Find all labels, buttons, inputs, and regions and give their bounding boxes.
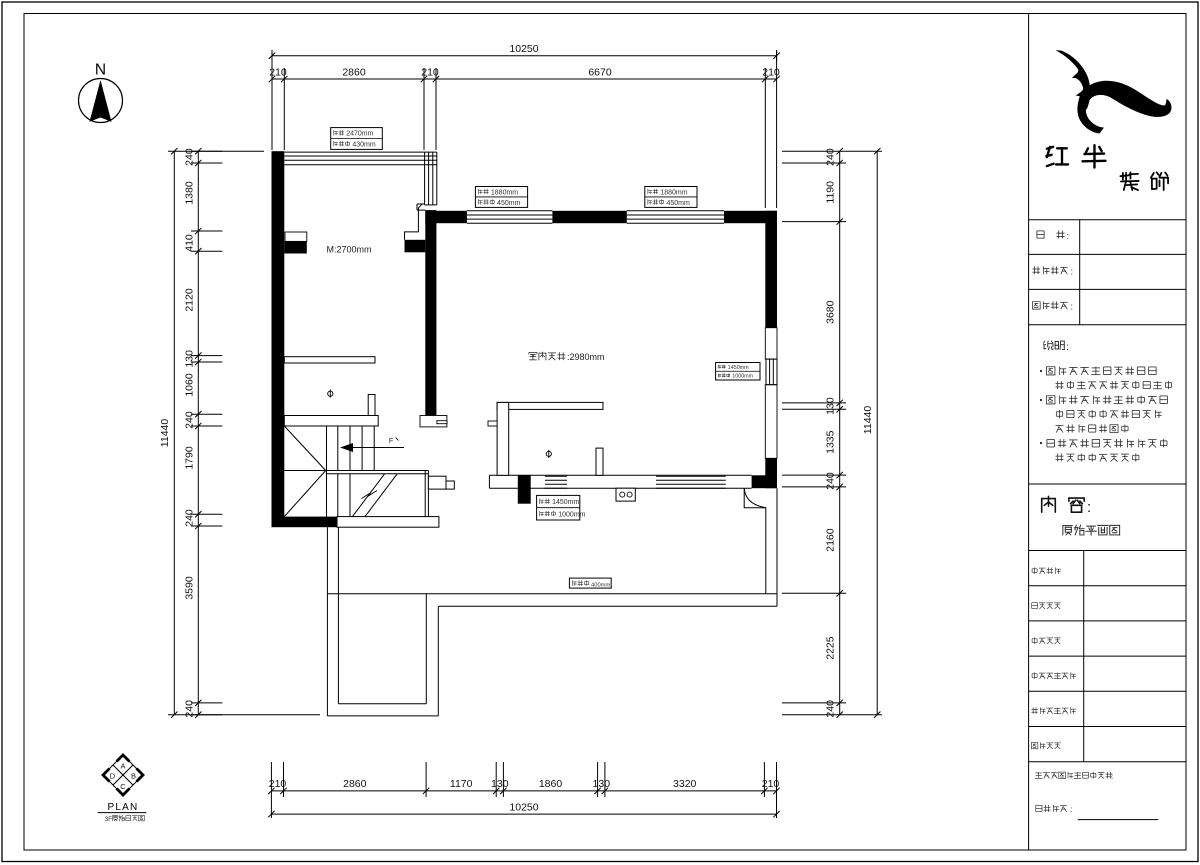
svg-text:10250: 10250 — [509, 802, 538, 814]
svg-text::: : — [1087, 499, 1091, 516]
svg-text::: : — [1111, 772, 1113, 781]
svg-text:410: 410 — [184, 234, 196, 252]
svg-text:C: C — [120, 782, 126, 791]
svg-text::2980mm: :2980mm — [567, 352, 605, 362]
svg-text:210: 210 — [762, 67, 780, 79]
svg-text:1060: 1060 — [184, 373, 196, 397]
svg-text:PLAN: PLAN — [108, 802, 139, 813]
svg-text:11440: 11440 — [159, 419, 171, 448]
svg-text:450mm: 450mm — [666, 200, 690, 207]
svg-text:F: F — [389, 438, 393, 445]
svg-text:M:2700mm: M:2700mm — [327, 245, 372, 255]
svg-text:130: 130 — [593, 778, 611, 790]
svg-text::: : — [1070, 805, 1072, 814]
svg-text:240: 240 — [825, 472, 837, 490]
svg-text::: : — [1071, 267, 1074, 277]
svg-text:1190: 1190 — [825, 181, 837, 204]
svg-text::: : — [1067, 231, 1070, 241]
svg-text:3320: 3320 — [673, 778, 697, 790]
svg-text:450mm: 450mm — [497, 200, 521, 207]
svg-text:1880mm: 1880mm — [660, 189, 687, 196]
svg-text:130: 130 — [825, 397, 837, 415]
svg-text:D: D — [110, 772, 116, 781]
svg-text:2120: 2120 — [184, 288, 196, 312]
svg-text:210: 210 — [421, 67, 439, 79]
svg-text:240: 240 — [184, 509, 196, 527]
svg-text:210: 210 — [269, 67, 287, 79]
svg-text:A: A — [120, 762, 125, 771]
svg-text:2225: 2225 — [825, 636, 837, 660]
svg-text:3F: 3F — [105, 816, 113, 823]
svg-text::: : — [1066, 342, 1069, 353]
svg-text:430mm: 430mm — [352, 142, 376, 149]
svg-text:240: 240 — [825, 700, 837, 718]
svg-text:1880mm: 1880mm — [491, 189, 518, 196]
svg-text:B: B — [131, 772, 136, 781]
svg-text:1860: 1860 — [539, 778, 563, 790]
svg-text:1450mm: 1450mm — [552, 499, 579, 506]
svg-text:11440: 11440 — [862, 406, 874, 435]
svg-text:3590: 3590 — [184, 576, 196, 600]
svg-text:1000mm: 1000mm — [732, 374, 753, 380]
svg-text:3680: 3680 — [825, 300, 837, 324]
svg-text:400mm: 400mm — [591, 582, 611, 588]
svg-text:2160: 2160 — [825, 528, 837, 552]
svg-text:2860: 2860 — [343, 778, 367, 790]
svg-text:1380: 1380 — [184, 181, 196, 205]
svg-text:1790: 1790 — [184, 446, 196, 470]
svg-text:N: N — [95, 62, 106, 79]
svg-text:2470mm: 2470mm — [346, 131, 373, 138]
svg-text:1170: 1170 — [450, 778, 473, 790]
svg-text:240: 240 — [184, 700, 196, 718]
svg-text:1335: 1335 — [825, 430, 837, 454]
svg-text:240: 240 — [825, 148, 837, 166]
svg-text:2860: 2860 — [342, 67, 366, 79]
svg-text:130: 130 — [491, 778, 509, 790]
svg-text:130: 130 — [184, 350, 196, 368]
svg-text:1450mm: 1450mm — [728, 365, 749, 371]
svg-text:6670: 6670 — [588, 67, 612, 79]
svg-text:10250: 10250 — [509, 43, 538, 55]
svg-text:240: 240 — [184, 411, 196, 429]
svg-text:210: 210 — [269, 778, 287, 790]
svg-text:210: 210 — [762, 778, 780, 790]
svg-text:1000mm: 1000mm — [558, 512, 585, 519]
svg-text::: : — [1071, 302, 1074, 312]
svg-text:240: 240 — [184, 148, 196, 166]
